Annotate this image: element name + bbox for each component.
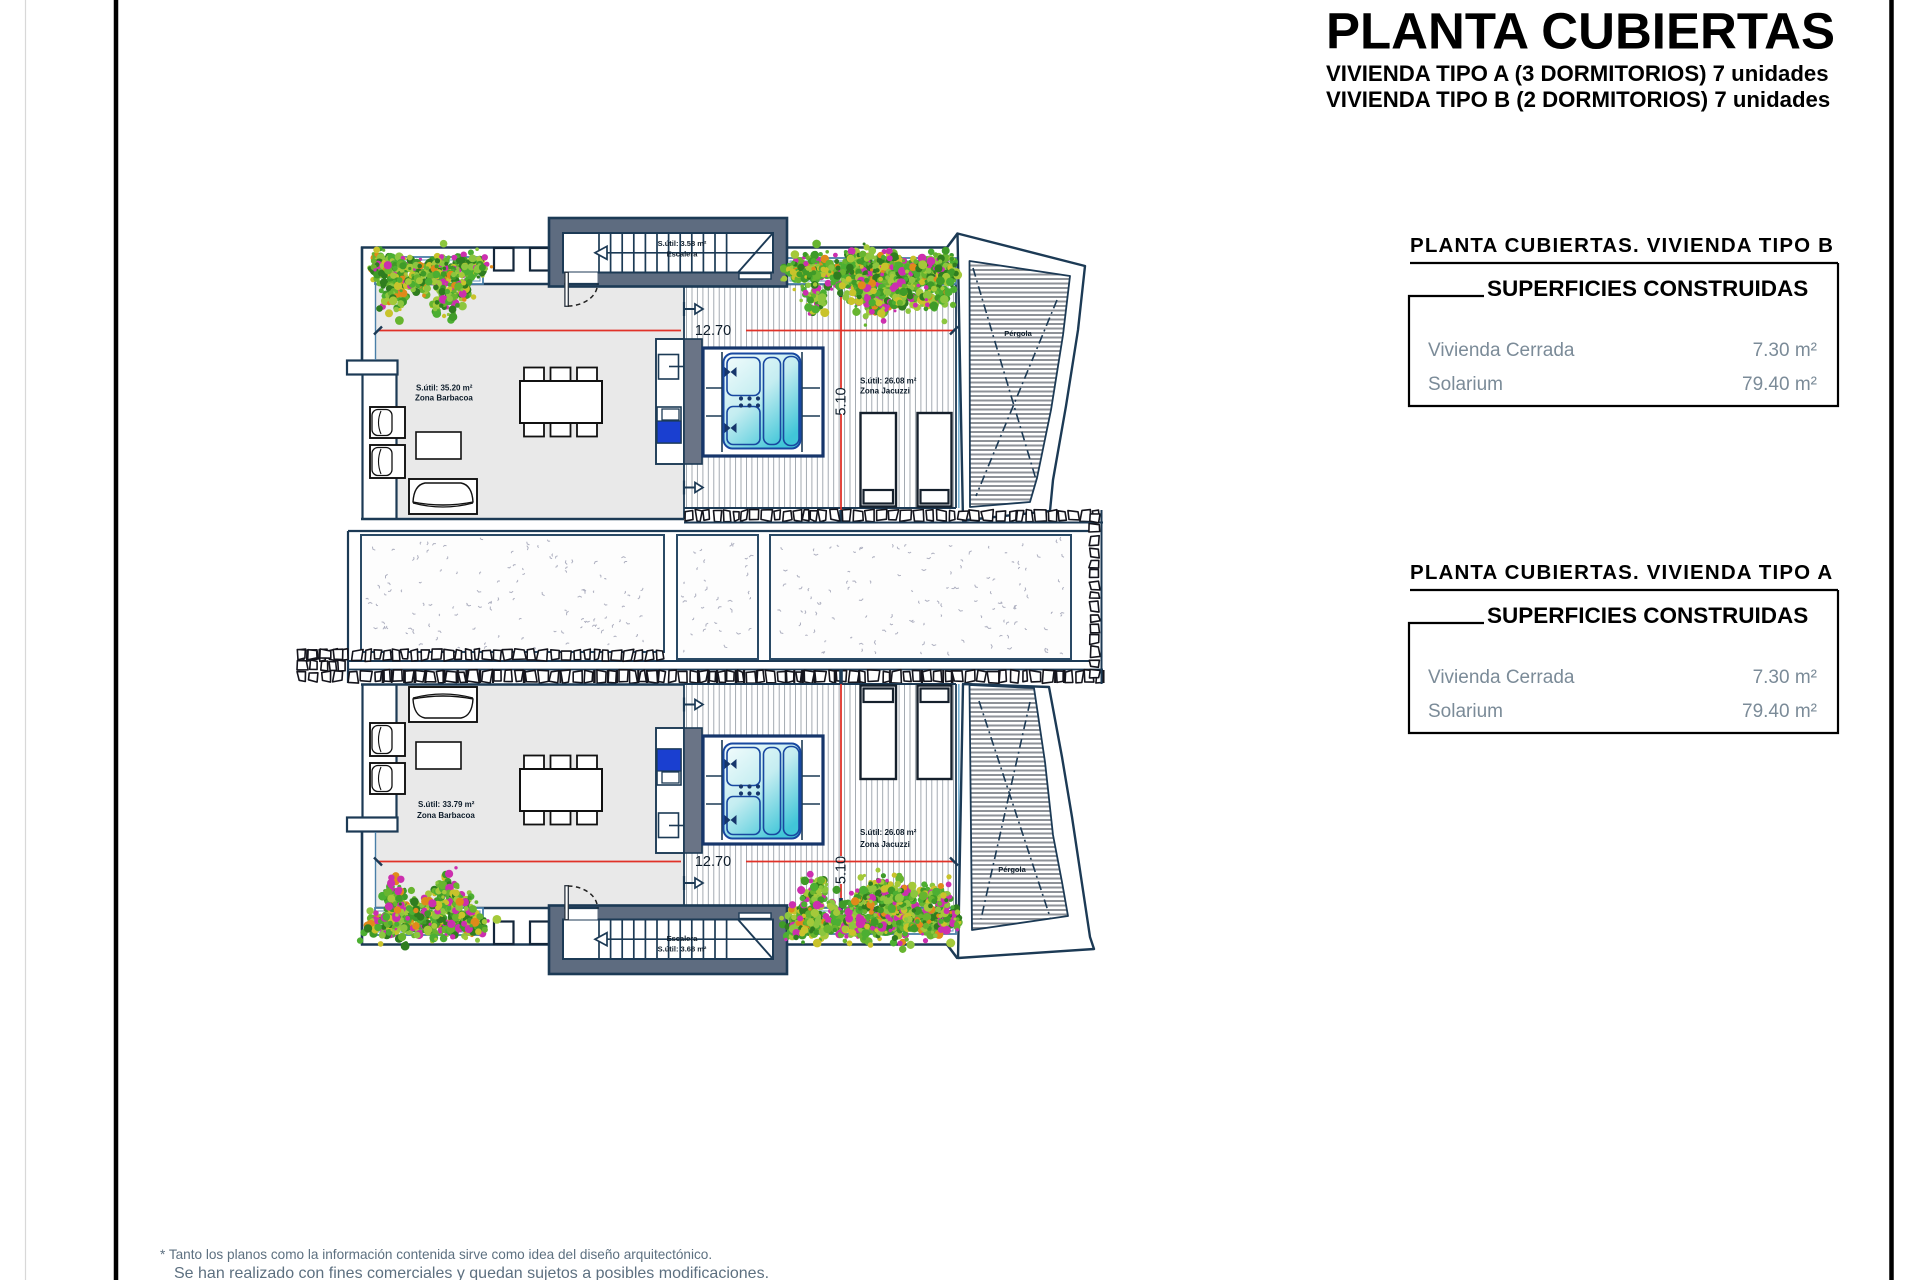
svg-text:5.10: 5.10 — [834, 387, 850, 415]
svg-text:PLANTA CUBIERTAS. VIVIENDA TIP: PLANTA CUBIERTAS. VIVIENDA TIPO B — [1410, 234, 1834, 257]
svg-text:VIVIENDA TIPO B (2 DORMITORIOS: VIVIENDA TIPO B (2 DORMITORIOS) 7 unidad… — [1326, 87, 1830, 112]
svg-text:S.útil: 3.58 m²: S.útil: 3.58 m² — [658, 239, 707, 248]
svg-text:* Tanto los planos como la inf: * Tanto los planos como la información c… — [160, 1247, 712, 1262]
svg-text:Vivienda Cerrada: Vivienda Cerrada — [1428, 667, 1575, 688]
svg-text:S.útil: 33.79 m²: S.útil: 33.79 m² — [418, 800, 475, 809]
svg-text:Escalera: Escalera — [667, 250, 699, 259]
svg-text:7.30 m²: 7.30 m² — [1753, 340, 1817, 361]
svg-text:79.40 m²: 79.40 m² — [1742, 701, 1817, 722]
svg-text:Zona Jacuzzi: Zona Jacuzzi — [860, 387, 910, 396]
svg-text:5.10: 5.10 — [834, 856, 850, 884]
svg-text:PLANTA CUBIERTAS. VIVIENDA TIP: PLANTA CUBIERTAS. VIVIENDA TIPO A — [1410, 561, 1833, 584]
svg-text:Zona Barbacoa: Zona Barbacoa — [417, 811, 475, 820]
svg-text:79.40 m²: 79.40 m² — [1742, 374, 1817, 395]
svg-text:S.útil: 3.68 m²: S.útil: 3.68 m² — [658, 945, 707, 954]
svg-text:12.70: 12.70 — [695, 854, 731, 870]
svg-text:Escalera: Escalera — [667, 934, 699, 943]
svg-text:VIVIENDA TIPO A (3 DORMITORIOS: VIVIENDA TIPO A (3 DORMITORIOS) 7 unidad… — [1326, 61, 1829, 86]
svg-text:Se han realizado con fines com: Se han realizado con fines comerciales y… — [174, 1265, 769, 1280]
svg-text:S.útil: 26.08 m²: S.útil: 26.08 m² — [860, 377, 917, 386]
svg-text:S.útil: 26.08 m²: S.útil: 26.08 m² — [860, 828, 917, 837]
svg-text:Vivienda Cerrada: Vivienda Cerrada — [1428, 340, 1575, 361]
svg-text:Zona Barbacoa: Zona Barbacoa — [415, 394, 473, 403]
svg-text:Zona Jacuzzi: Zona Jacuzzi — [860, 840, 910, 849]
svg-text:Solarium: Solarium — [1428, 701, 1503, 722]
svg-text:Solarium: Solarium — [1428, 374, 1503, 395]
svg-text:SUPERFICIES CONSTRUIDAS: SUPERFICIES CONSTRUIDAS — [1487, 276, 1808, 301]
svg-text:Pérgola: Pérgola — [998, 865, 1026, 874]
svg-text:7.30 m²: 7.30 m² — [1753, 667, 1817, 688]
svg-text:12.70: 12.70 — [695, 323, 731, 339]
svg-text:SUPERFICIES CONSTRUIDAS: SUPERFICIES CONSTRUIDAS — [1487, 603, 1808, 628]
svg-text:S.útil: 35.20 m²: S.útil: 35.20 m² — [416, 384, 473, 393]
svg-text:Pérgola: Pérgola — [1004, 329, 1032, 338]
svg-text:PLANTA CUBIERTAS: PLANTA CUBIERTAS — [1326, 3, 1835, 60]
